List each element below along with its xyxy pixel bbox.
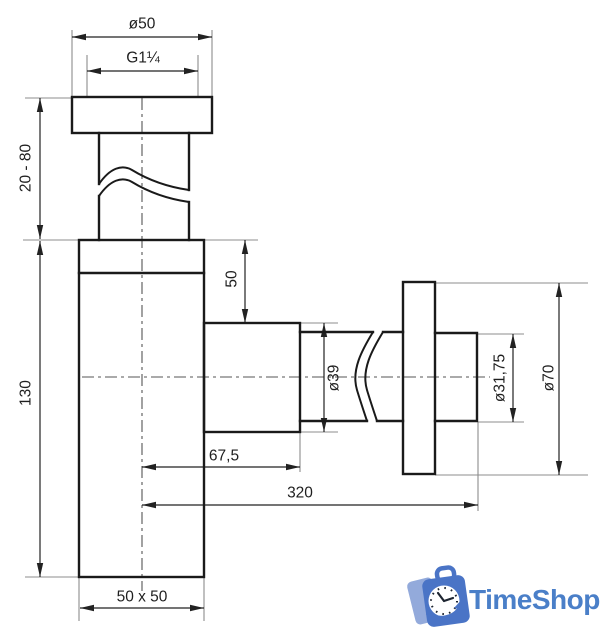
centerlines (82, 98, 490, 591)
label-flange-diameter: ø70 (541, 365, 557, 392)
label-body-section: 50 x 50 (117, 589, 168, 605)
stopwatch-icon (406, 567, 471, 628)
timeshop-logo-text: TimeShop (469, 585, 600, 616)
label-body-height: 130 (18, 380, 34, 406)
label-overall-length: 320 (287, 485, 313, 501)
label-cap-diameter: ø50 (129, 16, 156, 32)
drawing-canvas (0, 0, 607, 640)
inlet-tube (99, 133, 189, 240)
timeshop-logo-icon (406, 567, 471, 628)
wall-flange (403, 282, 435, 474)
tube-break-line (99, 167, 189, 190)
label-outlet-projection: 67,5 (209, 448, 239, 464)
label-pipe-diameter: ø31,75 (492, 354, 508, 402)
technical-drawing-page: ø50 G1¼ 20 - 80 130 50 ø39 67,5 320 ø31,… (0, 0, 607, 640)
label-outlet-top-offset: 50 (224, 270, 240, 287)
tube-break-line (99, 179, 189, 202)
label-adjustable-height: 20 - 80 (18, 144, 34, 192)
label-thread: G1¼ (126, 50, 160, 66)
extension-lines (23, 30, 588, 621)
label-nut-diameter: ø39 (326, 365, 342, 392)
